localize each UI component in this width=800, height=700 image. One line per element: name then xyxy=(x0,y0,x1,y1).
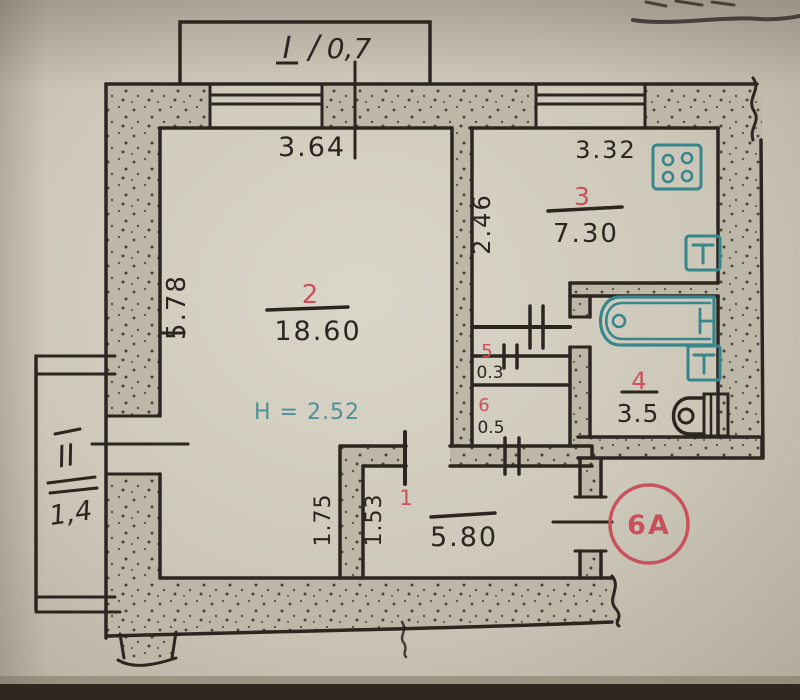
room-4-number: 4 xyxy=(631,367,646,395)
room-1-number: 1 xyxy=(399,486,412,510)
dim-1-75: 1.75 xyxy=(311,494,336,547)
dim-2-46: 2.46 xyxy=(468,193,496,254)
room-6-number: 6 xyxy=(478,395,489,416)
room-3-area: 7.30 xyxy=(553,219,619,249)
balcony-2-area: 1,4 xyxy=(47,495,94,532)
floor-plan-photo: 3.64 3.32 2.46 5.78 1.75 1.53 18.60 7.30… xyxy=(0,0,800,700)
room-2-area: 18.60 xyxy=(274,316,361,347)
dim-3-64: 3.64 xyxy=(278,132,346,163)
ceiling-height-label: H = 2.52 xyxy=(254,400,360,425)
balcony-1-area: 0,7 xyxy=(327,32,372,65)
photo-top-shadow xyxy=(0,0,800,90)
room-2-number: 2 xyxy=(302,280,319,310)
room-6-area: 0.5 xyxy=(477,418,504,438)
bottom-photo-edge xyxy=(0,684,800,700)
room-3-number: 3 xyxy=(574,182,590,211)
dim-3-32: 3.32 xyxy=(575,136,636,164)
room-4-area: 3.5 xyxy=(617,399,660,428)
dim-5-78: 5.78 xyxy=(162,274,192,340)
dim-1-53: 1.53 xyxy=(362,494,387,547)
room-1-area: 5.80 xyxy=(430,522,498,553)
apartment-number: 6A xyxy=(627,510,671,541)
floor-plan-drawing: 3.64 3.32 2.46 5.78 1.75 1.53 18.60 7.30… xyxy=(0,0,800,700)
room-5-area: 0.3 xyxy=(476,363,503,383)
room-5-number: 5 xyxy=(481,341,492,362)
balcony-1-numeral: I xyxy=(283,31,292,66)
photo-left-shadow xyxy=(0,0,46,700)
